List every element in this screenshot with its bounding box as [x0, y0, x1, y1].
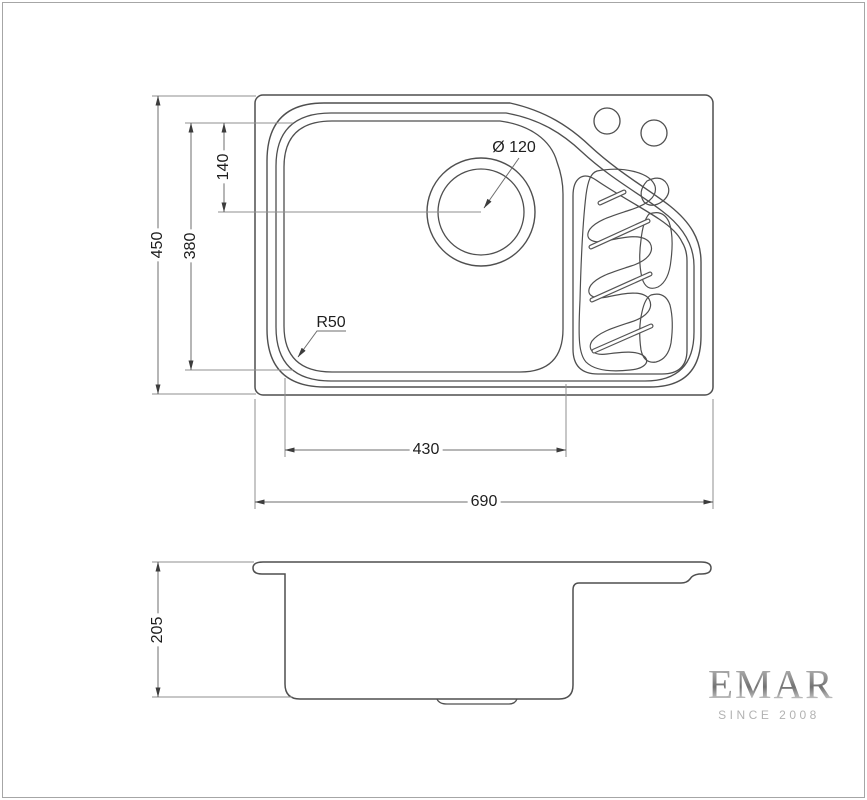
drainboard-slots [591, 192, 651, 351]
dim-380-label: 380 [182, 230, 200, 263]
dim-205-label: 205 [149, 614, 167, 647]
rim-inner-boundary [267, 103, 701, 387]
drain-diameter-label: Ø 120 [492, 139, 536, 157]
leader-radius [298, 331, 346, 357]
dim-140-label: 140 [215, 151, 233, 184]
top-view [255, 95, 713, 395]
faucet-hole-right [641, 120, 667, 146]
corner-radius-label: R50 [316, 314, 345, 332]
dim-450-label: 450 [149, 229, 167, 262]
faucet-hole-left [594, 108, 620, 134]
rim-step-line [276, 113, 694, 381]
dimension-lines [152, 96, 713, 697]
side-view [253, 562, 711, 704]
brand-tagline: SINCE 2008 [718, 708, 820, 722]
drawing-page: 450 380 140 430 690 205 Ø 120 R50 EMAR S… [0, 0, 867, 800]
dim-690-label: 690 [468, 493, 501, 511]
dim-430-label: 430 [410, 441, 443, 459]
sink-outer-edge [255, 95, 713, 395]
side-profile [253, 562, 711, 699]
bowl-outline [284, 121, 563, 372]
leader-drain [484, 158, 519, 208]
brand-logo: EMAR [708, 664, 834, 705]
